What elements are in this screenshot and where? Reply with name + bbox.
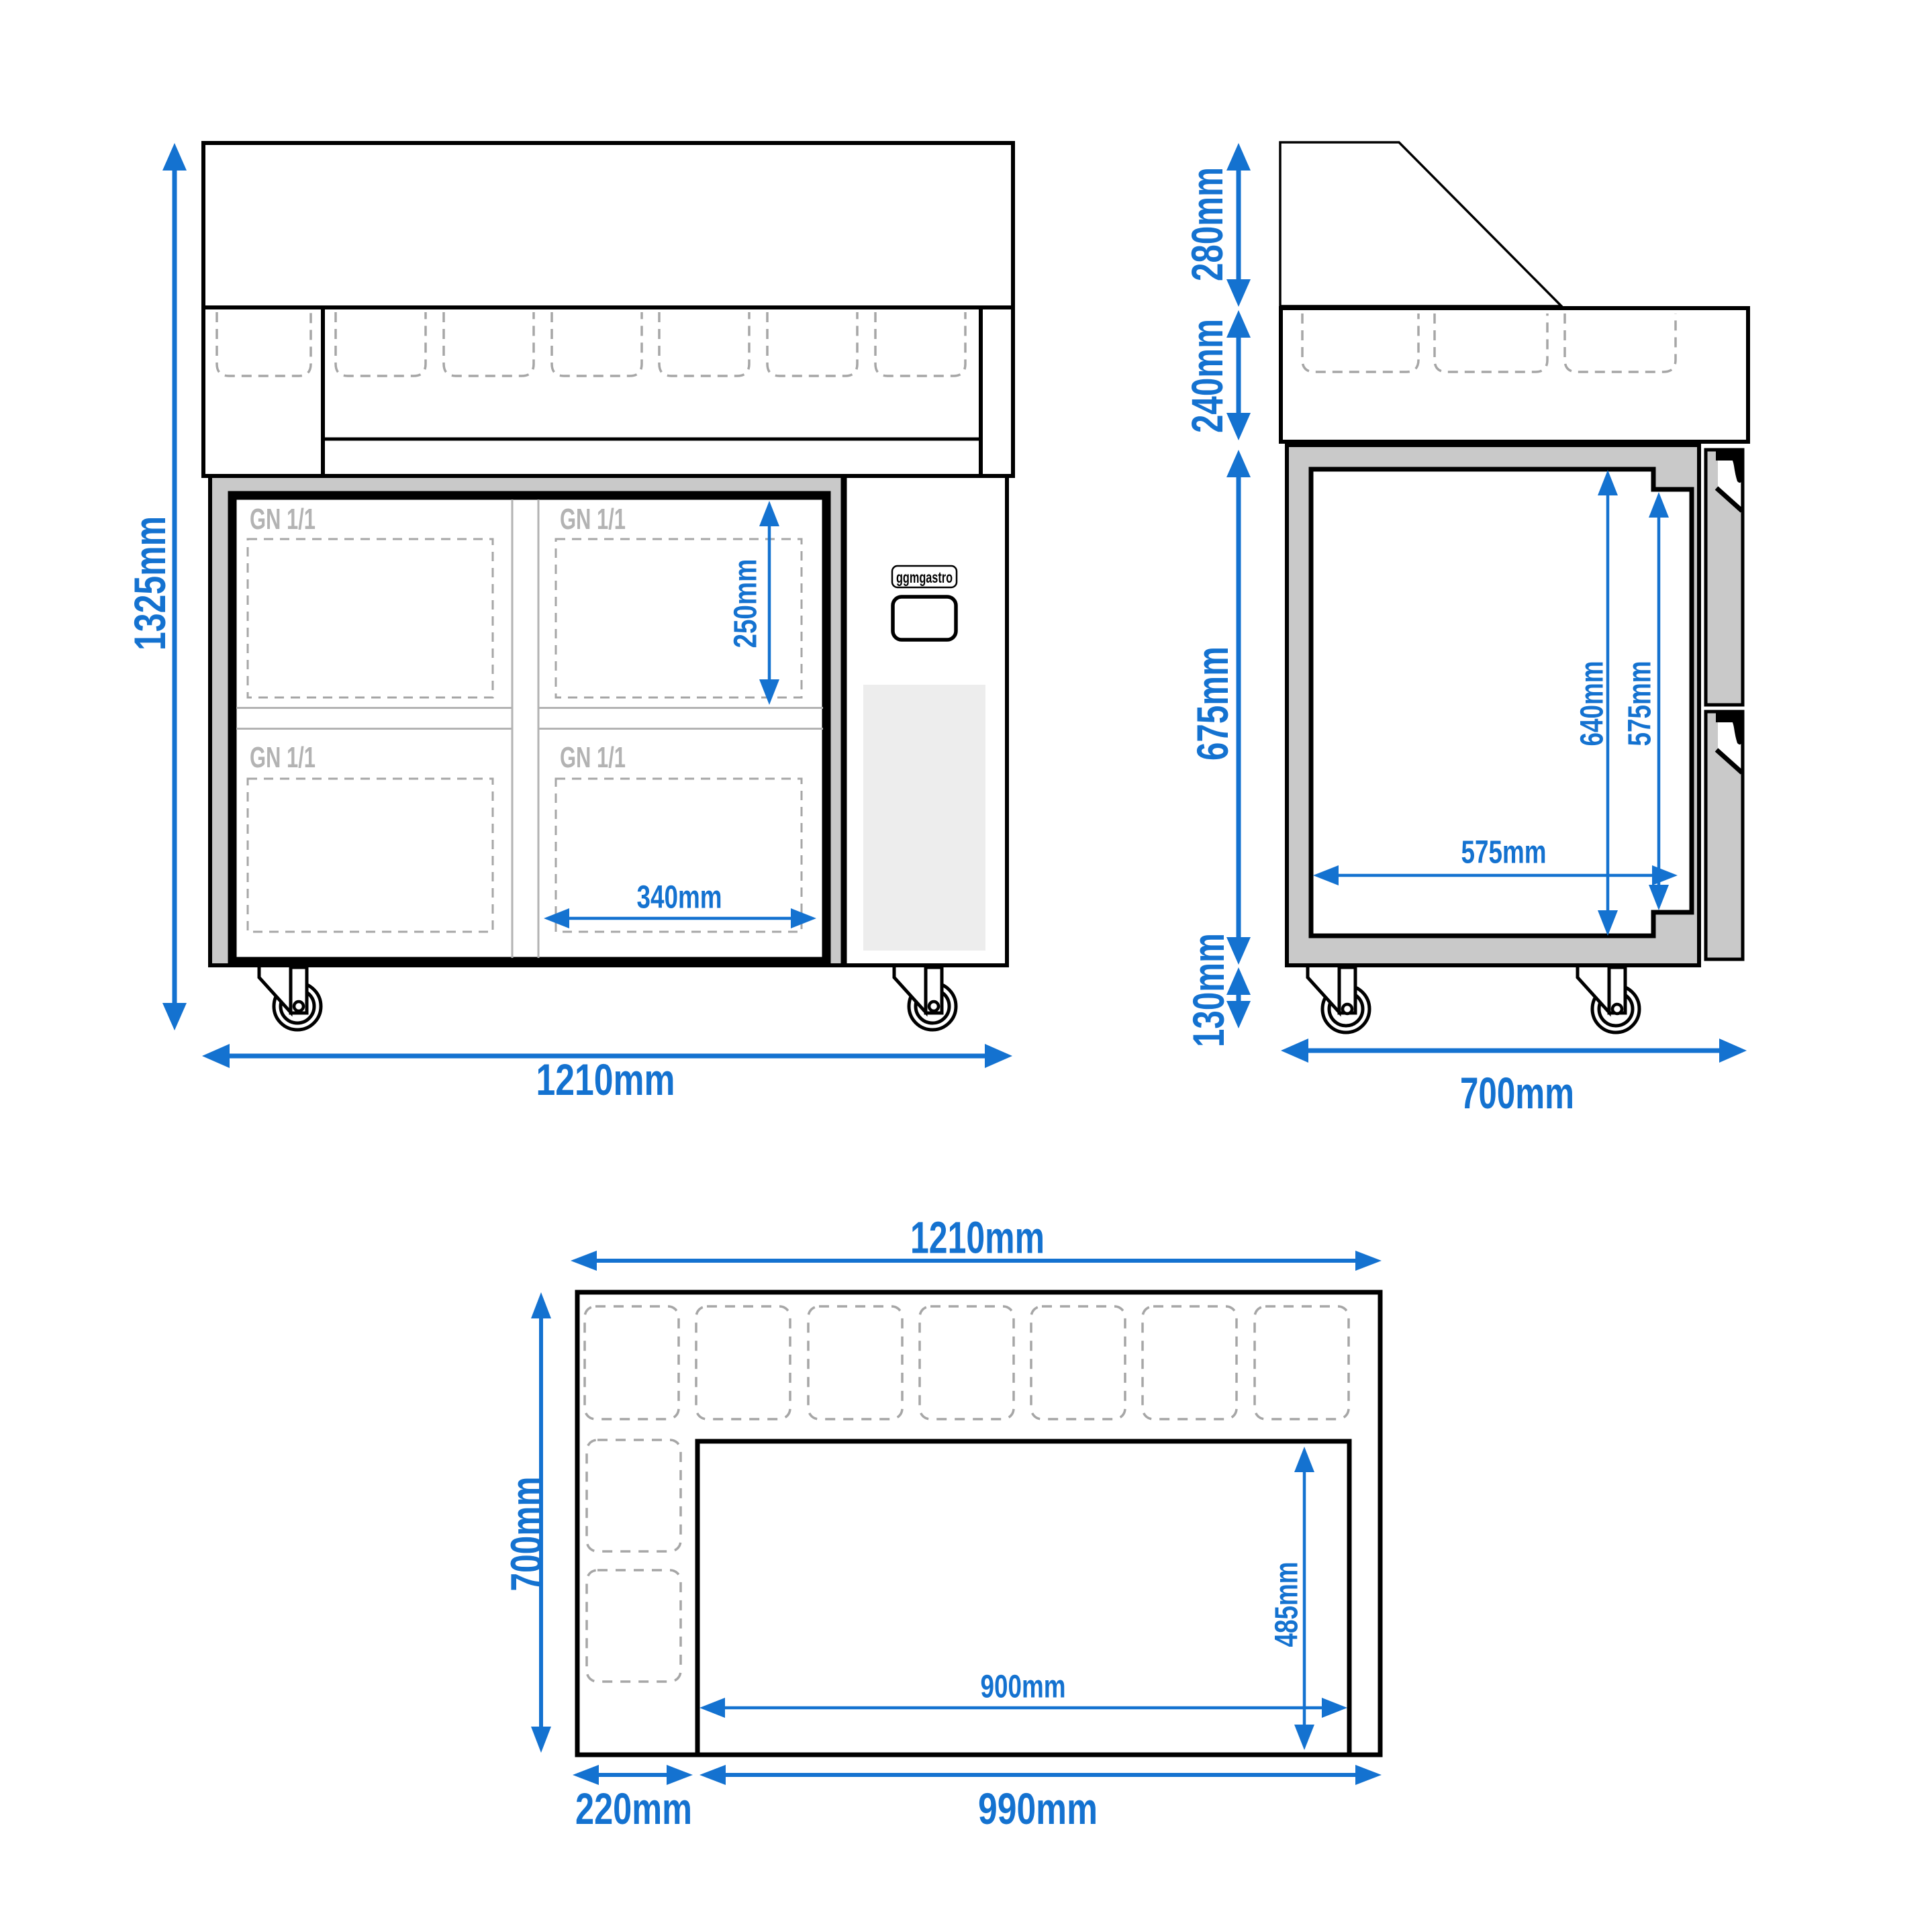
svg-text:GN 1/1: GN 1/1 xyxy=(560,741,626,774)
svg-text:700mm: 700mm xyxy=(502,1477,552,1592)
svg-text:1325mm: 1325mm xyxy=(125,516,175,650)
svg-text:280mm: 280mm xyxy=(1182,167,1232,281)
svg-text:240mm: 240mm xyxy=(1182,319,1232,433)
svg-text:1210mm: 1210mm xyxy=(910,1213,1045,1263)
svg-text:220mm: 220mm xyxy=(575,1784,692,1833)
svg-text:250mm: 250mm xyxy=(728,559,764,648)
svg-text:900mm: 900mm xyxy=(981,1670,1066,1705)
svg-text:640mm: 640mm xyxy=(1575,661,1610,746)
svg-text:575mm: 575mm xyxy=(1461,835,1547,871)
svg-text:485mm: 485mm xyxy=(1269,1562,1305,1647)
svg-text:340mm: 340mm xyxy=(637,880,722,916)
svg-text:990mm: 990mm xyxy=(978,1784,1098,1833)
svg-text:GN 1/1: GN 1/1 xyxy=(250,503,316,536)
svg-text:GN 1/1: GN 1/1 xyxy=(560,503,626,536)
svg-text:575mm: 575mm xyxy=(1623,661,1658,746)
svg-text:130mm: 130mm xyxy=(1184,933,1233,1047)
svg-text:700mm: 700mm xyxy=(1460,1068,1574,1118)
svg-text:GN 1/1: GN 1/1 xyxy=(250,741,316,774)
svg-text:675mm: 675mm xyxy=(1188,646,1237,761)
svg-text:1210mm: 1210mm xyxy=(536,1055,675,1104)
svg-text:ggmgastro: ggmgastro xyxy=(896,569,953,586)
